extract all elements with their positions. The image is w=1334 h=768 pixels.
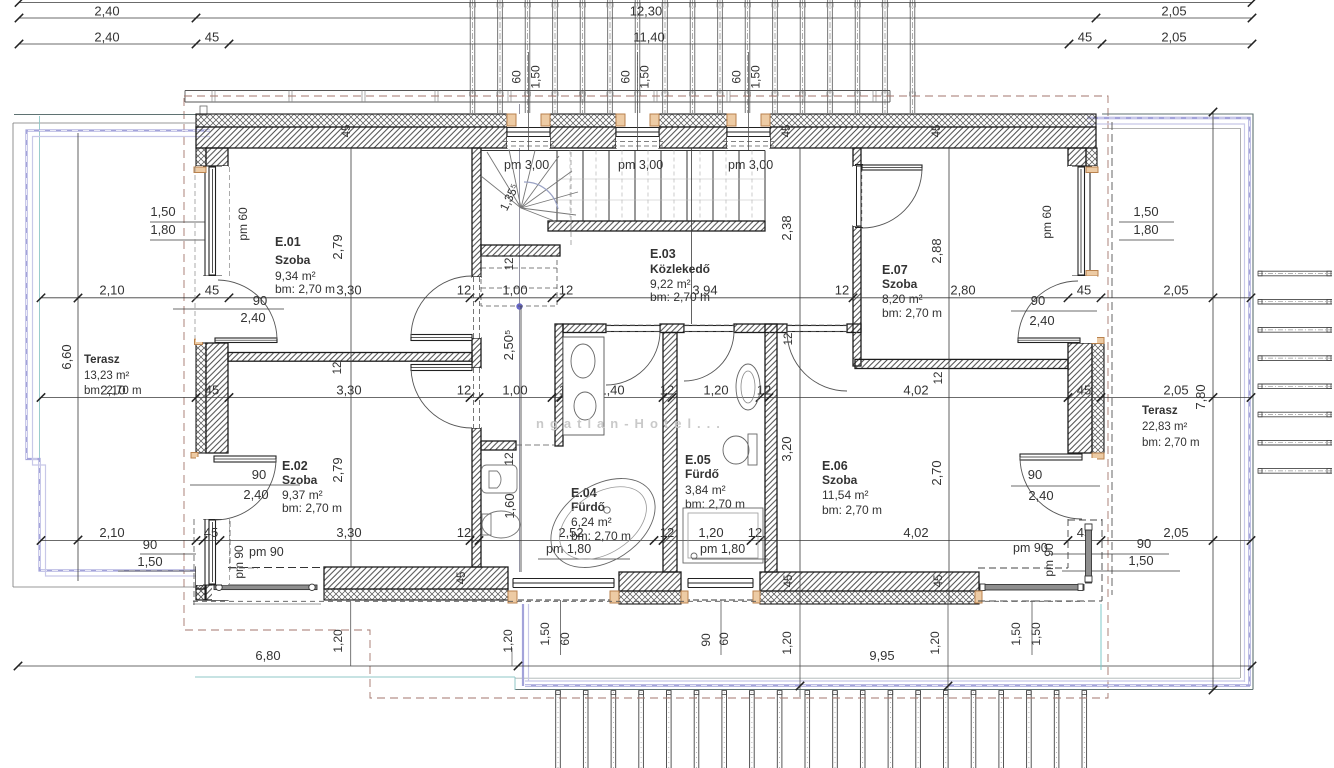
svg-text:45: 45 xyxy=(781,125,793,138)
svg-text:Fürdő: Fürdő xyxy=(571,500,605,514)
svg-text:12: 12 xyxy=(502,452,516,466)
svg-text:2,79: 2,79 xyxy=(330,457,345,482)
svg-text:2,05: 2,05 xyxy=(1161,4,1186,19)
svg-text:11,54 m²: 11,54 m² xyxy=(822,488,868,502)
svg-text:45: 45 xyxy=(341,125,353,138)
svg-text:12,30: 12,30 xyxy=(630,4,663,19)
svg-text:12: 12 xyxy=(660,525,674,540)
svg-text:45: 45 xyxy=(1077,283,1091,298)
svg-text:90: 90 xyxy=(252,467,266,482)
svg-text:E.04: E.04 xyxy=(571,486,597,500)
svg-text:90: 90 xyxy=(1137,536,1151,551)
svg-text:2,38: 2,38 xyxy=(779,215,794,240)
svg-text:ngatlan-Hotel...: ngatlan-Hotel... xyxy=(536,416,726,431)
svg-text:22,83 m²: 22,83 m² xyxy=(1142,421,1188,433)
svg-text:12: 12 xyxy=(457,383,471,398)
svg-text:45: 45 xyxy=(931,125,943,138)
svg-text:60: 60 xyxy=(717,632,731,646)
svg-text:3,30: 3,30 xyxy=(336,525,361,540)
svg-text:2,05: 2,05 xyxy=(1163,525,1188,540)
svg-text:pm 3,00: pm 3,00 xyxy=(618,158,663,172)
svg-text:13,23 m²: 13,23 m² xyxy=(84,370,130,382)
svg-text:3,84 m²: 3,84 m² xyxy=(685,483,726,497)
svg-text:1,20: 1,20 xyxy=(780,631,794,655)
svg-text:2,05: 2,05 xyxy=(1163,283,1188,298)
svg-text:9,95: 9,95 xyxy=(869,648,894,663)
svg-text:bm: 2,70 m: bm: 2,70 m xyxy=(822,503,882,517)
svg-text:E.01: E.01 xyxy=(275,235,301,249)
svg-text:1,80: 1,80 xyxy=(1133,222,1158,237)
svg-text:12: 12 xyxy=(835,283,849,298)
svg-text:2,10: 2,10 xyxy=(99,283,124,298)
svg-text:6,60: 6,60 xyxy=(59,344,74,369)
svg-text:1,20: 1,20 xyxy=(698,525,723,540)
svg-text:90: 90 xyxy=(699,633,713,647)
svg-text:bm: 2,70 m: bm: 2,70 m xyxy=(882,306,942,320)
svg-text:1,50: 1,50 xyxy=(529,65,543,89)
svg-text:2,88: 2,88 xyxy=(929,238,944,263)
svg-text:4,02: 4,02 xyxy=(903,525,928,540)
svg-text:45: 45 xyxy=(205,283,219,298)
svg-text:2,05: 2,05 xyxy=(1161,30,1186,45)
svg-text:2,40: 2,40 xyxy=(240,310,265,325)
svg-text:2,80: 2,80 xyxy=(950,283,975,298)
svg-text:pm 60: pm 60 xyxy=(236,207,250,241)
svg-text:6,24 m²: 6,24 m² xyxy=(571,515,612,529)
svg-text:12: 12 xyxy=(660,383,674,398)
svg-text:12: 12 xyxy=(559,283,573,298)
svg-text:12: 12 xyxy=(933,372,945,385)
svg-text:Szoba: Szoba xyxy=(275,253,311,267)
svg-text:E.05: E.05 xyxy=(685,453,711,467)
svg-text:2,10: 2,10 xyxy=(100,383,125,398)
svg-text:bm: 2,70 m: bm: 2,70 m xyxy=(282,501,342,515)
svg-text:E.07: E.07 xyxy=(882,263,908,277)
svg-text:1,50: 1,50 xyxy=(1133,204,1158,219)
svg-text:Szoba: Szoba xyxy=(882,277,918,291)
svg-text:pm 90: pm 90 xyxy=(1042,543,1056,577)
svg-text:45: 45 xyxy=(204,525,218,540)
svg-text:Terasz: Terasz xyxy=(84,354,120,366)
svg-text:E.02: E.02 xyxy=(282,459,308,473)
svg-text:90: 90 xyxy=(253,293,267,308)
svg-text:12: 12 xyxy=(748,525,762,540)
svg-text:Terasz: Terasz xyxy=(1142,405,1178,417)
svg-text:1,20: 1,20 xyxy=(703,383,728,398)
svg-text:1,50: 1,50 xyxy=(638,65,652,89)
svg-text:Fürdő: Fürdő xyxy=(685,467,719,481)
svg-text:pm 3,00: pm 3,00 xyxy=(728,158,773,172)
svg-text:1,50: 1,50 xyxy=(749,65,763,89)
svg-text:2,40: 2,40 xyxy=(94,4,119,19)
svg-text:90: 90 xyxy=(143,537,157,552)
svg-text:1,00: 1,00 xyxy=(502,383,527,398)
svg-text:1,20: 1,20 xyxy=(928,631,942,655)
svg-text:2,05: 2,05 xyxy=(1163,383,1188,398)
svg-text:bm: 2,70 m: bm: 2,70 m xyxy=(571,529,631,543)
svg-text:9,37 m²: 9,37 m² xyxy=(282,488,323,502)
svg-text:60: 60 xyxy=(510,70,524,84)
svg-text:45: 45 xyxy=(1077,383,1091,398)
svg-text:pm 60: pm 60 xyxy=(1040,205,1054,239)
svg-text:45: 45 xyxy=(783,575,795,588)
svg-text:11,40: 11,40 xyxy=(633,30,665,45)
svg-text:E.06: E.06 xyxy=(822,459,848,473)
svg-text:9,22 m²: 9,22 m² xyxy=(650,277,691,291)
svg-text:1,50: 1,50 xyxy=(1128,553,1153,568)
svg-text:90: 90 xyxy=(1031,293,1045,308)
svg-text:1,00: 1,00 xyxy=(502,283,527,298)
svg-text:pm 90: pm 90 xyxy=(232,545,246,579)
svg-text:12: 12 xyxy=(457,283,471,298)
svg-text:2,40: 2,40 xyxy=(243,487,268,502)
svg-text:2,40: 2,40 xyxy=(94,30,119,45)
svg-text:60: 60 xyxy=(619,70,633,84)
svg-text:2,70: 2,70 xyxy=(929,460,944,485)
svg-text:Szoba: Szoba xyxy=(822,473,858,487)
svg-text:1,50: 1,50 xyxy=(538,622,552,646)
svg-text:3,30: 3,30 xyxy=(336,383,361,398)
svg-text:12: 12 xyxy=(457,525,471,540)
svg-text:12: 12 xyxy=(504,258,516,271)
svg-text:Szoba: Szoba xyxy=(282,473,318,487)
svg-text:8,20 m²: 8,20 m² xyxy=(882,292,923,306)
svg-text:bm: 2,70 m: bm: 2,70 m xyxy=(1142,437,1200,449)
svg-text:12: 12 xyxy=(332,362,344,375)
svg-text:1,20: 1,20 xyxy=(331,629,345,653)
svg-text:2,40: 2,40 xyxy=(1028,488,1053,503)
svg-text:45: 45 xyxy=(456,572,468,585)
svg-text:2,79: 2,79 xyxy=(330,234,345,259)
svg-text:1,50: 1,50 xyxy=(1009,622,1023,646)
svg-text:12: 12 xyxy=(783,333,795,346)
svg-text:1,80: 1,80 xyxy=(150,222,175,237)
svg-text:45: 45 xyxy=(205,383,219,398)
svg-text:E.03: E.03 xyxy=(650,247,676,261)
svg-text:9,34 m²: 9,34 m² xyxy=(275,269,316,283)
svg-text:1,50: 1,50 xyxy=(150,204,175,219)
svg-text:45: 45 xyxy=(933,575,945,588)
svg-text:2,40: 2,40 xyxy=(1029,313,1054,328)
svg-text:60: 60 xyxy=(730,70,744,84)
svg-text:1,50: 1,50 xyxy=(1029,622,1043,646)
svg-text:pm 90: pm 90 xyxy=(249,545,284,559)
svg-text:60: 60 xyxy=(558,632,572,646)
svg-text:2,10: 2,10 xyxy=(99,525,124,540)
svg-text:4,02: 4,02 xyxy=(903,383,928,398)
svg-text:1,50: 1,50 xyxy=(137,554,162,569)
svg-text:bm: 2,70 m: bm: 2,70 m xyxy=(650,290,710,304)
svg-text:6,80: 6,80 xyxy=(255,648,280,663)
svg-text:pm 1,80: pm 1,80 xyxy=(700,542,745,556)
svg-text:Közlekedő: Közlekedő xyxy=(650,262,710,276)
svg-text:bm: 2,70 m: bm: 2,70 m xyxy=(685,497,745,511)
svg-text:45: 45 xyxy=(205,30,219,45)
svg-text:90: 90 xyxy=(1028,467,1042,482)
svg-text:7,80: 7,80 xyxy=(1193,384,1208,409)
svg-text:bm: 2,70 m: bm: 2,70 m xyxy=(275,282,335,296)
svg-text:1,20: 1,20 xyxy=(501,629,515,653)
svg-text:3,30: 3,30 xyxy=(336,283,361,298)
svg-text:3,20: 3,20 xyxy=(779,436,794,461)
svg-text:2,50⁵: 2,50⁵ xyxy=(501,330,516,361)
svg-text:45: 45 xyxy=(1078,30,1092,45)
